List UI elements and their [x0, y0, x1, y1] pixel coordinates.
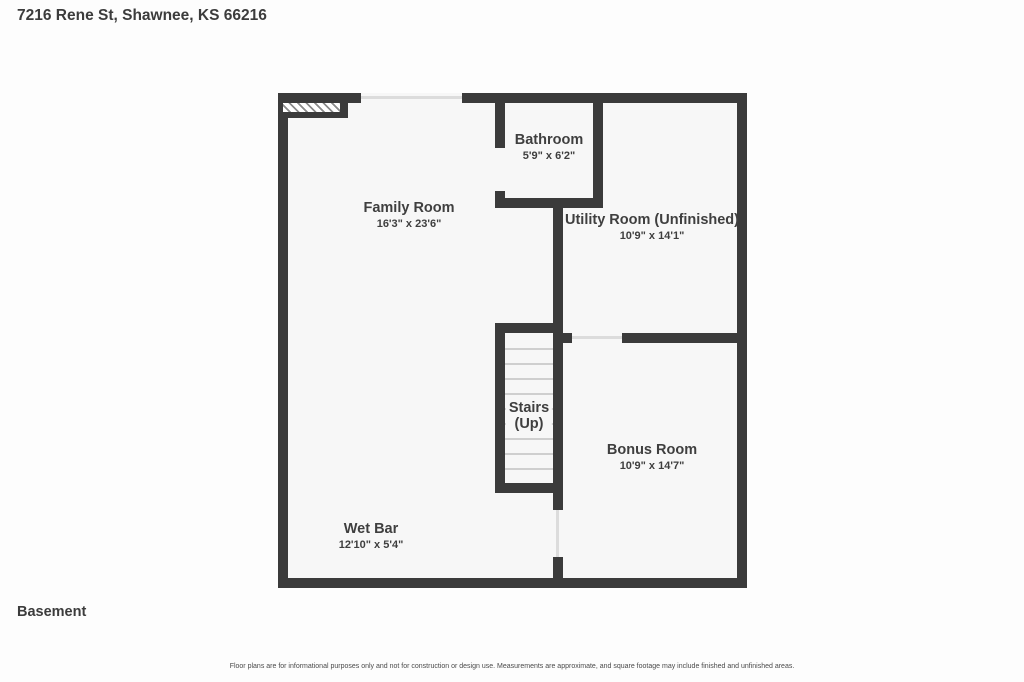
stairs-name: Stairs — [509, 401, 549, 417]
utility-room-name: Utility Room (Unfinished) — [565, 213, 739, 229]
wall-top-right-segment — [462, 93, 747, 103]
wall-top-left-segment — [278, 93, 361, 103]
bathroom-dims: 5'9" x 6'2" — [515, 149, 583, 164]
family-utility-divider-wall — [553, 208, 563, 333]
stair-tread — [505, 348, 553, 350]
floor-plan-page: 7216 Rene St, Shawnee, KS 66216 — [0, 0, 1024, 682]
window-opening — [361, 96, 462, 99]
utility-bonus-wall-stub — [563, 333, 572, 343]
stairs-wall-bottom — [495, 483, 563, 493]
floor-level-label: Basement — [17, 604, 86, 620]
address-title: 7216 Rene St, Shawnee, KS 66216 — [17, 7, 267, 25]
wall-left — [278, 93, 288, 588]
stair-tread — [505, 393, 553, 395]
utility-bonus-wall — [622, 333, 747, 343]
stair-tread — [505, 468, 553, 470]
bonus-room-name: Bonus Room — [607, 443, 697, 459]
stairs-wall-top — [495, 323, 563, 333]
wet-bar-dims: 12'10" x 5'4" — [339, 538, 404, 553]
room-label-stairs: Stairs (Up) — [506, 401, 552, 433]
bonus-room-door-opening — [556, 510, 559, 557]
stair-tread — [505, 438, 553, 440]
room-label-wet-bar: Wet Bar 12'10" x 5'4" — [339, 522, 404, 553]
utility-room-dims: 10'9" x 14'1" — [565, 229, 739, 244]
family-room-dims: 16'3" x 23'6" — [363, 217, 454, 232]
room-label-bonus-room: Bonus Room 10'9" x 14'7" — [607, 443, 697, 474]
fireplace-hatch — [283, 103, 348, 118]
bonus-room-dims: 10'9" x 14'7" — [607, 459, 697, 474]
bathroom-wall-left-stub — [495, 191, 505, 198]
bathroom-wall-left-upper — [495, 103, 505, 148]
wall-bottom — [278, 578, 747, 588]
room-label-utility-room: Utility Room (Unfinished) 10'9" x 14'1" — [565, 213, 739, 244]
disclaimer-text: Floor plans are for informational purpos… — [0, 663, 1024, 670]
stairs-direction: (Up) — [509, 417, 549, 433]
stair-tread — [505, 363, 553, 365]
bathroom-name: Bathroom — [515, 133, 583, 149]
below-stairs-wall-stub — [553, 557, 563, 588]
room-label-bathroom: Bathroom 5'9" x 6'2" — [515, 133, 583, 164]
wet-bar-name: Wet Bar — [339, 522, 404, 538]
bathroom-wall-bottom — [495, 198, 603, 208]
stair-tread — [505, 378, 553, 380]
bathroom-wall-right — [593, 103, 603, 198]
stair-tread — [505, 453, 553, 455]
utility-bonus-door-opening — [572, 336, 622, 339]
room-label-family-room: Family Room 16'3" x 23'6" — [363, 201, 454, 232]
family-room-name: Family Room — [363, 201, 454, 217]
floor-plan: Family Room 16'3" x 23'6" Bathroom 5'9" … — [278, 93, 747, 588]
stairs-wall-left — [495, 323, 505, 493]
